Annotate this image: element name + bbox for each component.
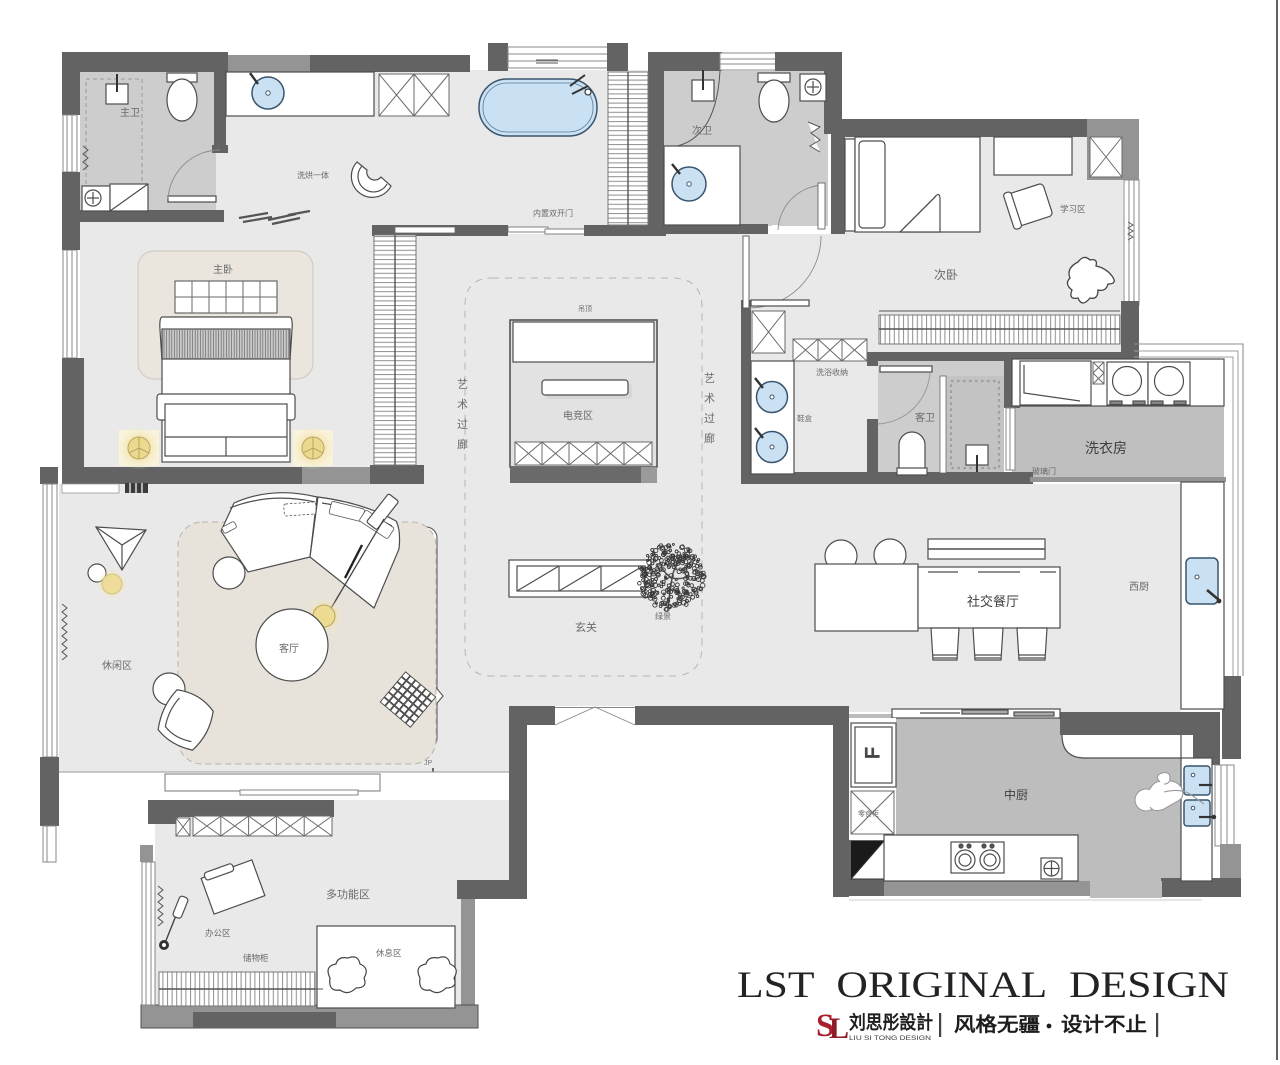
svg-text:绿景: 绿景 xyxy=(655,612,671,621)
svg-text:储物柜: 储物柜 xyxy=(243,953,269,963)
svg-text:艺: 艺 xyxy=(704,372,715,385)
svg-text:设计不止: 设计不止 xyxy=(1061,1013,1147,1036)
svg-text:F: F xyxy=(863,747,884,759)
svg-text:次卫: 次卫 xyxy=(692,124,712,137)
svg-text:社交餐厅: 社交餐厅 xyxy=(967,594,1019,609)
svg-text:休闲区: 休闲区 xyxy=(102,659,132,672)
svg-text:过: 过 xyxy=(457,418,468,431)
svg-text:办公区: 办公区 xyxy=(205,928,231,938)
svg-text:吊顶: 吊顶 xyxy=(578,305,592,313)
svg-text:洗衣房: 洗衣房 xyxy=(1085,440,1127,456)
svg-text:内置双开门: 内置双开门 xyxy=(533,208,573,218)
svg-text:L: L xyxy=(829,1012,849,1045)
svg-text:艺: 艺 xyxy=(457,378,468,391)
svg-text:主卫: 主卫 xyxy=(120,107,140,119)
svg-text:LST ORIGINAL DESIGN: LST ORIGINAL DESIGN xyxy=(737,964,1229,1005)
svg-text:洗烘一体: 洗烘一体 xyxy=(297,170,329,180)
svg-text:廊: 廊 xyxy=(704,431,715,445)
svg-text:术: 术 xyxy=(704,392,715,405)
svg-text:洗浴收纳: 洗浴收纳 xyxy=(816,367,848,377)
svg-text:风格无疆: 风格无疆 xyxy=(954,1013,1041,1036)
svg-text:中厨: 中厨 xyxy=(1004,787,1028,802)
svg-text:电竞区: 电竞区 xyxy=(563,409,593,422)
svg-text:客卫: 客卫 xyxy=(915,411,935,424)
svg-text:零食柜: 零食柜 xyxy=(858,809,879,818)
svg-text:术: 术 xyxy=(457,398,468,411)
svg-text:过: 过 xyxy=(704,412,715,425)
svg-text:次卧: 次卧 xyxy=(934,268,958,282)
svg-text:学习区: 学习区 xyxy=(1060,204,1086,214)
svg-text:多功能区: 多功能区 xyxy=(326,887,370,901)
svg-text:廊: 廊 xyxy=(457,437,468,451)
svg-text:主卧: 主卧 xyxy=(213,263,233,276)
svg-text:JP: JP xyxy=(424,760,433,767)
svg-text:玄关: 玄关 xyxy=(575,620,597,634)
svg-text:LIU SI TONG DESIGN: LIU SI TONG DESIGN xyxy=(849,1035,931,1042)
svg-text:玻璃门: 玻璃门 xyxy=(1032,466,1056,476)
svg-text:休息区: 休息区 xyxy=(376,948,402,958)
svg-text:西厨: 西厨 xyxy=(1129,581,1149,593)
svg-text:客厅: 客厅 xyxy=(279,642,299,655)
svg-text:鞋盒: 鞋盒 xyxy=(797,413,812,423)
svg-text:刘思彤設計: 刘思彤設計 xyxy=(849,1012,933,1033)
